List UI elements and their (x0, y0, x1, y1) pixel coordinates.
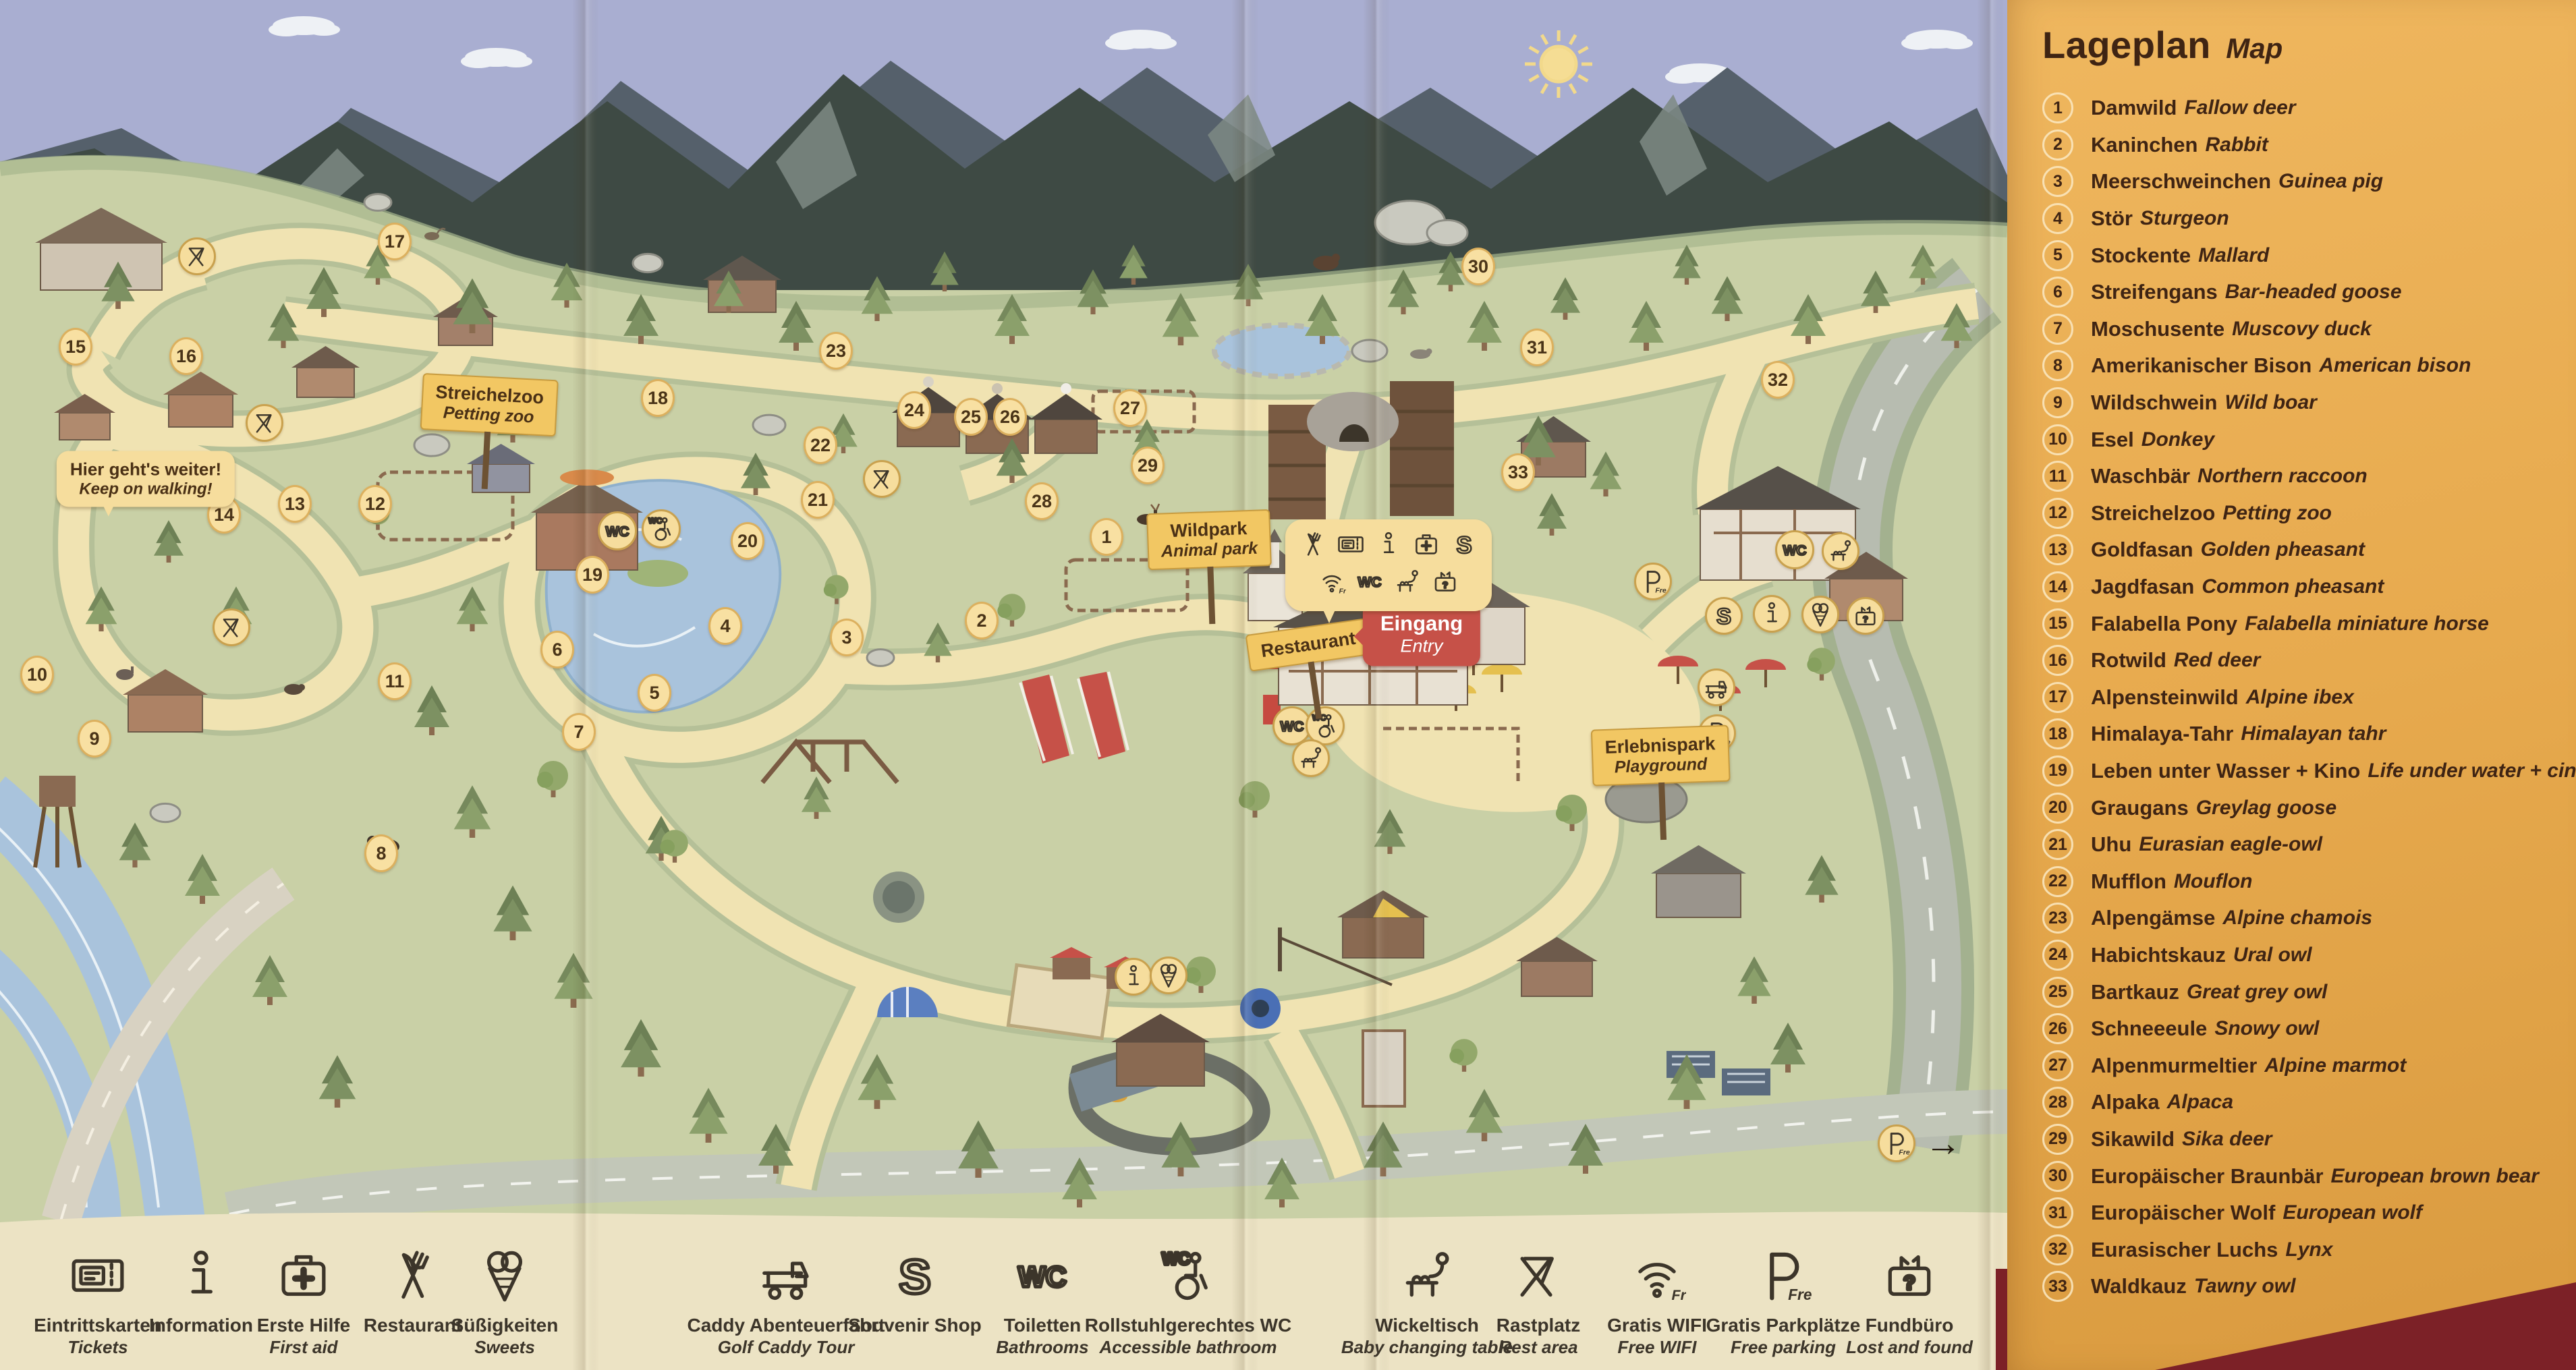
legend-item-label-en: Snowy owl (2214, 1017, 2319, 1040)
legend-item-label-en: Mouflon (2174, 870, 2253, 893)
legend-item-label-de: Amerikanischer Bison (2091, 353, 2312, 378)
wc-icon: WC (603, 517, 632, 545)
services-wc: WC (1355, 567, 1384, 599)
map-marker-29: 29 (1131, 447, 1165, 484)
footer-label-en: Golf Caddy Tour (671, 1337, 901, 1358)
wc-icon: WC (1278, 712, 1306, 740)
legend-item-label-de: Uhu (2091, 832, 2131, 857)
legend-item-number: 6 (2042, 277, 2073, 308)
footer-item-lost-found: ?FundbüroLost and found (1795, 1240, 2024, 1358)
legend-item: 31Europäischer WolfEuropean wolf (2042, 1195, 2576, 1232)
legend-item-label-en: Eurasian eagle-owl (2139, 833, 2322, 856)
legend-item-number: 12 (2042, 498, 2073, 529)
wc-accessible-icon-wrap: WC (1073, 1240, 1303, 1305)
rest-area-icon (251, 409, 278, 436)
svg-text:?: ? (1863, 614, 1868, 624)
legend-item-label-de: Moschusente (2091, 317, 2224, 341)
legend-item: 6StreifengansBar-headed goose (2042, 274, 2576, 311)
map-marker-28: 28 (1025, 482, 1059, 520)
restaurant-icon (1299, 530, 1327, 559)
legend-item-label-en: Life under water + cinema (2368, 760, 2576, 782)
footer-label-en: Tickets (0, 1337, 213, 1358)
legend-item-label-de: Esel (2091, 428, 2134, 452)
map-sign-wildpark: WildparkAnimal park (1146, 509, 1272, 570)
legend-item-label-de: Damwild (2091, 96, 2177, 120)
svg-text:WC: WC (1162, 1249, 1190, 1268)
legend-item: 17AlpensteinwildAlpine ibex (2042, 679, 2576, 716)
map-marker-6: 6 (540, 631, 574, 668)
services-ticket (1337, 530, 1365, 562)
svg-text:Free: Free (1339, 588, 1347, 596)
legend-item: 7MoschusenteMuscovy duck (2042, 311, 2576, 348)
svg-text:?: ? (1443, 579, 1449, 590)
sign-label-de: Wildpark (1160, 518, 1257, 542)
legend-item-label-en: Bar-headed goose (2225, 281, 2402, 304)
footer-label-en: Sweets (390, 1337, 619, 1358)
map-marker-10: 10 (20, 656, 54, 693)
services-first-aid (1412, 530, 1440, 562)
footer-label-en: Lost and found (1795, 1337, 2024, 1358)
map-facility-baby-changing (1822, 532, 1859, 570)
map-facility-info (1753, 595, 1791, 633)
legend-item-label-en: European brown bear (2331, 1165, 2539, 1188)
map-marker-5: 5 (638, 674, 671, 712)
legend-item-label-en: Donkey (2141, 428, 2214, 451)
map-facility-wc: WC (1775, 530, 1814, 569)
legend-item-label-en: Petting zoo (2222, 502, 2332, 525)
wifi-free-icon: Free (1318, 567, 1346, 596)
footer-label-de: Süßigkeiten (390, 1314, 619, 1337)
legend-item-number: 19 (2042, 755, 2073, 787)
services-row: FreeWC? (1299, 567, 1478, 599)
map-marker-7: 7 (562, 713, 596, 751)
exit-arrow-icon: → (1925, 1122, 1961, 1164)
legend-item-number: 23 (2042, 903, 2073, 934)
legend-item-label-en: Mallard (2198, 244, 2269, 267)
map-facility-ice-cream (1150, 957, 1187, 994)
ice-cream-icon-wrap (390, 1240, 619, 1305)
legend-item-label-en: Sturgeon (2140, 207, 2229, 230)
sign-label-de: Restaurant (1260, 628, 1357, 662)
svg-text:S: S (1716, 604, 1731, 629)
legend-item: 26SchneeeuleSnowy owl (2042, 1010, 2576, 1048)
rest-area-icon (218, 614, 245, 641)
svg-text:WC: WC (1358, 575, 1382, 590)
wc-icon: WC (1013, 1247, 1071, 1305)
services-lost-found: ? (1431, 567, 1459, 599)
map-facility-parking-free: Free (1878, 1124, 1915, 1162)
legend-item: 18Himalaya-TahrHimalayan tahr (2042, 716, 2576, 753)
svg-text:WC: WC (1783, 543, 1807, 559)
legend-item-label-de: Himalaya-Tahr (2091, 722, 2233, 746)
legend-item: 4StörSturgeon (2042, 200, 2576, 237)
legend-item-label-en: Alpine marmot (2264, 1054, 2406, 1077)
legend-item-label-de: Europäischer Wolf (2091, 1201, 2275, 1225)
map-facility-wc: WC (598, 511, 637, 550)
map-marker-17: 17 (378, 223, 412, 260)
map-marker-11: 11 (378, 662, 412, 700)
lost-found-icon: ? (1431, 567, 1459, 596)
legend-item: 5StockenteMallard (2042, 237, 2576, 274)
legend-item-label-de: Graugans (2091, 796, 2189, 820)
legend-item-number: 33 (2042, 1271, 2073, 1302)
sign-label-en: Animal park (1161, 539, 1258, 562)
services-wifi-free: Free (1318, 567, 1346, 599)
legend-item-label-en: Muscovy duck (2232, 318, 2372, 341)
legend-item-number: 20 (2042, 793, 2073, 824)
map-services-bubble: SFreeWC? (1285, 519, 1492, 611)
footer-item-ice-cream: SüßigkeitenSweets (390, 1240, 619, 1358)
map-parking-exit: Free→ (1878, 1122, 1961, 1164)
services-info (1374, 530, 1403, 562)
footer-label-de: Fundbüro (1795, 1314, 2024, 1337)
ice-cream-icon (1807, 601, 1834, 628)
legend-item-number: 2 (2042, 130, 2073, 161)
legend-item-label-de: Bartkauz (2091, 980, 2179, 1004)
legend-item-number: 31 (2042, 1197, 2073, 1228)
legend-item-label-de: Schneeeule (2091, 1017, 2207, 1041)
svg-text:WC: WC (1281, 719, 1304, 735)
map-marker-31: 31 (1520, 329, 1554, 366)
map-marker-32: 32 (1761, 361, 1795, 399)
legend-item-label-en: Alpine ibex (2246, 686, 2354, 709)
legend-title: Lageplan Map (2042, 23, 2576, 67)
legend-item-label-de: Alpenmurmeltier (2091, 1054, 2257, 1078)
svg-text:?: ? (1903, 1272, 1915, 1294)
footer-label-en: Accessible bathroom (1073, 1337, 1303, 1358)
legend-item-label-de: Alpaka (2091, 1090, 2160, 1114)
map-facility-wc-accessible: WC (642, 509, 681, 548)
legend-item-label-en: American bison (2319, 354, 2471, 377)
ticket-icon (1337, 530, 1365, 559)
map-facility-rest-area (213, 608, 250, 646)
legend-item-label-de: Streifengans (2091, 280, 2218, 304)
legend-item-number: 3 (2042, 166, 2073, 197)
map-marker-12: 12 (358, 485, 392, 523)
svg-text:WC: WC (1018, 1261, 1067, 1294)
legend-item: 28AlpakaAlpaca (2042, 1084, 2576, 1121)
sign-label-en: Keep on walking! (70, 480, 221, 499)
legend-item-label-de: Waldkauz (2091, 1274, 2187, 1298)
lost-found-icon: ? (1852, 602, 1879, 629)
legend-item: 29SikawildSika deer (2042, 1121, 2576, 1158)
legend-item-label-de: Mufflon (2091, 869, 2166, 894)
legend-item: 30Europäischer BraunbärEuropean brown be… (2042, 1158, 2576, 1195)
legend-item-label-en: European wolf (2283, 1201, 2422, 1224)
legend-title-en: Map (2226, 32, 2283, 64)
map-marker-1: 1 (1090, 518, 1123, 556)
legend-item: 19Leben unter Wasser + KinoLife under wa… (2042, 753, 2576, 790)
legend-item-label-en: Ural owl (2233, 944, 2312, 967)
legend-item-number: 14 (2042, 571, 2073, 602)
legend-item-number: 11 (2042, 461, 2073, 492)
legend-item-label-en: Rabbit (2205, 134, 2268, 156)
wildpark-map-photo: 1234567891011121314151617181920212223242… (0, 0, 2576, 1370)
sign-label-en: Playground (1605, 754, 1716, 777)
legend-item-label-de: Stör (2091, 206, 2133, 231)
legend-item-label-de: Jagdfasan (2091, 575, 2194, 599)
map-facility-rest-area (178, 237, 216, 275)
map-marker-3: 3 (830, 619, 864, 656)
legend-item: 23AlpengämseAlpine chamois (2042, 900, 2576, 937)
footer-label-de: Rollstuhlgerechtes WC (1073, 1314, 1303, 1337)
map-marker-19: 19 (576, 556, 609, 594)
map-marker-9: 9 (78, 720, 111, 758)
map-facility-ice-cream (1801, 596, 1839, 633)
info-icon (1758, 600, 1785, 627)
map-marker-26: 26 (993, 398, 1027, 436)
legend-item: 20GraugansGreylag goose (2042, 789, 2576, 826)
souvenir-icon: S (1450, 530, 1478, 559)
rest-area-icon (868, 465, 895, 492)
map-facility-baby-changing (1292, 739, 1330, 777)
ice-cream-icon (476, 1247, 534, 1305)
map-marker-16: 16 (169, 337, 203, 375)
map-marker-13: 13 (278, 485, 312, 523)
first-aid-icon (1412, 530, 1440, 559)
legend-item-label-de: Meerschweinchen (2091, 169, 2271, 194)
legend-item-label-de: Streichelzoo (2091, 501, 2215, 525)
legend-item: 22MufflonMouflon (2042, 863, 2576, 900)
footer-item-wc-accessible: WCRollstuhlgerechtes WCAccessible bathro… (1073, 1240, 1303, 1358)
map-marker-25: 25 (954, 398, 988, 436)
legend-item-number: 24 (2042, 940, 2073, 971)
legend-item: 27AlpenmurmeltierAlpine marmot (2042, 1047, 2576, 1084)
legend-item-number: 13 (2042, 534, 2073, 565)
legend-item: 11WaschbärNorthern raccoon (2042, 458, 2576, 495)
wc-accessible-icon: WC (1159, 1247, 1217, 1305)
legend-item-number: 18 (2042, 718, 2073, 749)
map-marker-15: 15 (59, 328, 92, 366)
golf-cart-icon (1703, 674, 1730, 701)
legend-item-label-en: Greylag goose (2196, 797, 2336, 820)
map-sign-streichelzoo: StreichelzooPetting zoo (420, 373, 559, 436)
svg-text:WC: WC (606, 524, 629, 540)
legend-item: 14JagdfasanCommon pheasant (2042, 569, 2576, 606)
services-baby-changing (1393, 567, 1422, 599)
legend-item: 21UhuEurasian eagle-owl (2042, 826, 2576, 863)
legend-item-number: 8 (2042, 350, 2073, 381)
map-marker-21: 21 (801, 481, 835, 519)
svg-text:WC: WC (648, 516, 663, 525)
legend-item-label-en: Common pheasant (2202, 575, 2384, 598)
info-icon (1374, 530, 1403, 559)
baby-changing-icon (1393, 567, 1422, 596)
map-facility-parking-free: Free (1634, 563, 1672, 600)
legend-item-label-de: Rotwild (2091, 648, 2166, 673)
legend-item: 12StreichelzooPetting zoo (2042, 495, 2576, 532)
legend-item-label-de: Falabella Pony (2091, 612, 2237, 636)
map-marker-24: 24 (897, 391, 931, 429)
legend-item-number: 25 (2042, 977, 2073, 1008)
sign-label-de: Eingang (1380, 612, 1463, 636)
legend-item: 9WildschweinWild boar (2042, 384, 2576, 422)
map-marker-2: 2 (965, 602, 999, 639)
lost-found-icon-wrap: ? (1795, 1240, 2024, 1305)
services-souvenir: S (1450, 530, 1478, 562)
legend-item: 2KaninchenRabbit (2042, 127, 2576, 164)
legend-item: 8Amerikanischer BisonAmerican bison (2042, 347, 2576, 384)
map-marker-23: 23 (819, 332, 853, 370)
map-facility-lost-found: ? (1847, 597, 1884, 635)
legend-item-number: 27 (2042, 1050, 2073, 1081)
legend-item-label-en: Sika deer (2182, 1128, 2272, 1151)
legend-item-number: 26 (2042, 1013, 2073, 1044)
legend-item-label-de: Alpensteinwild (2091, 685, 2239, 710)
map-facility-golf-cart (1698, 668, 1735, 706)
svg-text:Free: Free (1899, 1149, 1910, 1157)
map-marker-22: 22 (804, 426, 837, 464)
svg-text:S: S (899, 1250, 931, 1304)
legend-item-number: 4 (2042, 203, 2073, 234)
services-restaurant (1299, 530, 1327, 562)
map-marker-4: 4 (708, 607, 742, 645)
map-sign-hier-gehts-weiter: Hier geht's weiter!Keep on walking! (57, 451, 235, 507)
info-icon (1120, 963, 1147, 990)
map-facility-souvenir: S (1705, 597, 1743, 635)
legend-item-label-en: Wild boar (2224, 391, 2316, 414)
rest-area-icon (184, 243, 211, 270)
legend-item-label-de: Sikawild (2091, 1127, 2175, 1151)
map-sign-eingang: EingangEntry (1363, 602, 1480, 666)
legend-item-number: 10 (2042, 424, 2073, 455)
legend-item: 16RotwildRed deer (2042, 642, 2576, 679)
map-facility-rest-area (863, 460, 901, 498)
legend-item-number: 1 (2042, 92, 2073, 123)
legend-item-label-de: Wildschwein (2091, 391, 2217, 415)
map-marker-18: 18 (641, 379, 675, 417)
map-marker-27: 27 (1113, 389, 1147, 427)
legend-item-label-en: Red deer (2174, 649, 2260, 672)
parking-free-icon: Free (1883, 1130, 1910, 1157)
legend-item-label-en: Golden pheasant (2201, 538, 2365, 561)
legend-item-label-en: Guinea pig (2278, 170, 2383, 193)
legend-item-number: 29 (2042, 1124, 2073, 1155)
svg-text:S: S (1456, 532, 1472, 559)
legend-item-label-de: Europäischer Braunbär (2091, 1164, 2324, 1189)
legend-list: 1DamwildFallow deer2KaninchenRabbit3Meer… (2042, 90, 2576, 1305)
legend-item-label-en: Great grey owl (2187, 981, 2327, 1004)
legend-item-label-de: Goldfasan (2091, 538, 2193, 562)
legend-item-label-de: Stockente (2091, 244, 2191, 268)
legend-item-label-en: Alpaca (2167, 1091, 2233, 1114)
legend-item-label-de: Waschbär (2091, 464, 2190, 488)
legend-panel: Lageplan Map 1DamwildFallow deer2Kaninch… (2007, 0, 2576, 1370)
legend-item-number: 16 (2042, 645, 2073, 676)
legend-item-number: 17 (2042, 682, 2073, 713)
map-marker-30: 30 (1461, 248, 1495, 285)
legend-item: 24HabichtskauzUral owl (2042, 937, 2576, 974)
legend-item: 25BartkauzGreat grey owl (2042, 973, 2576, 1010)
legend-item-label-en: Himalayan tahr (2241, 722, 2386, 745)
map-marker-33: 33 (1501, 453, 1535, 491)
legend-item-number: 28 (2042, 1087, 2073, 1118)
legend-item: 1DamwildFallow deer (2042, 90, 2576, 127)
map-facility-rest-area (246, 404, 283, 442)
legend-item-label-en: Tawny owl (2194, 1275, 2296, 1298)
wc-icon: WC (1781, 536, 1809, 564)
legend-item-number: 22 (2042, 866, 2073, 897)
map-marker-8: 8 (364, 834, 398, 872)
map-sign-erlebnispark: ErlebnisparkPlayground (1591, 725, 1730, 787)
footer-label-en: First aid (189, 1337, 418, 1358)
baby-changing-icon (1297, 745, 1324, 772)
sign-label-en: Entry (1380, 636, 1463, 657)
legend-item-label-de: Leben unter Wasser + Kino (2091, 759, 2360, 783)
legend-item-number: 15 (2042, 608, 2073, 639)
legend-item-number: 5 (2042, 240, 2073, 271)
legend-item-number: 9 (2042, 387, 2073, 418)
parking-free-icon: Free (1640, 568, 1667, 595)
legend-item-number: 7 (2042, 314, 2073, 345)
ice-cream-icon (1155, 962, 1182, 989)
svg-text:Free: Free (1655, 587, 1667, 595)
legend-item: 32Eurasischer LuchsLynx (2042, 1231, 2576, 1268)
map-facility-info (1115, 958, 1152, 996)
wc-icon: WC (1355, 567, 1384, 596)
legend-item-label-en: Falabella miniature horse (2245, 612, 2489, 635)
legend-item-label-de: Eurasischer Luchs (2091, 1238, 2278, 1262)
sign-label-de: Hier geht's weiter! (70, 459, 221, 480)
legend-item-label-en: Alpine chamois (2222, 907, 2372, 930)
lost-found-icon: ? (1880, 1247, 1938, 1305)
map-marker-20: 20 (731, 522, 764, 560)
legend-item-label-en: Lynx (2285, 1238, 2332, 1261)
legend-item-number: 32 (2042, 1234, 2073, 1265)
legend-item: 13GoldfasanGolden pheasant (2042, 532, 2576, 569)
services-row: S (1299, 530, 1478, 562)
legend-item: 3MeerschweinchenGuinea pig (2042, 163, 2576, 200)
legend-item-label-de: Alpengämse (2091, 906, 2215, 930)
legend-item-number: 21 (2042, 829, 2073, 860)
legend-item-label-de: Kaninchen (2091, 133, 2197, 157)
legend-item: 10EselDonkey (2042, 421, 2576, 458)
legend-item: 15Falabella PonyFalabella miniature hors… (2042, 605, 2576, 642)
legend-item-label-en: Fallow deer (2184, 96, 2295, 119)
souvenir-icon: S (1710, 602, 1737, 629)
legend-item-label-de: Habichtskauz (2091, 943, 2226, 967)
legend-title-de: Lageplan (2042, 24, 2211, 66)
wc-accessible-icon: WC (647, 515, 675, 543)
legend-item-label-en: Northern raccoon (2197, 465, 2368, 488)
legend-item-number: 30 (2042, 1161, 2073, 1192)
baby-changing-icon (1827, 538, 1854, 565)
